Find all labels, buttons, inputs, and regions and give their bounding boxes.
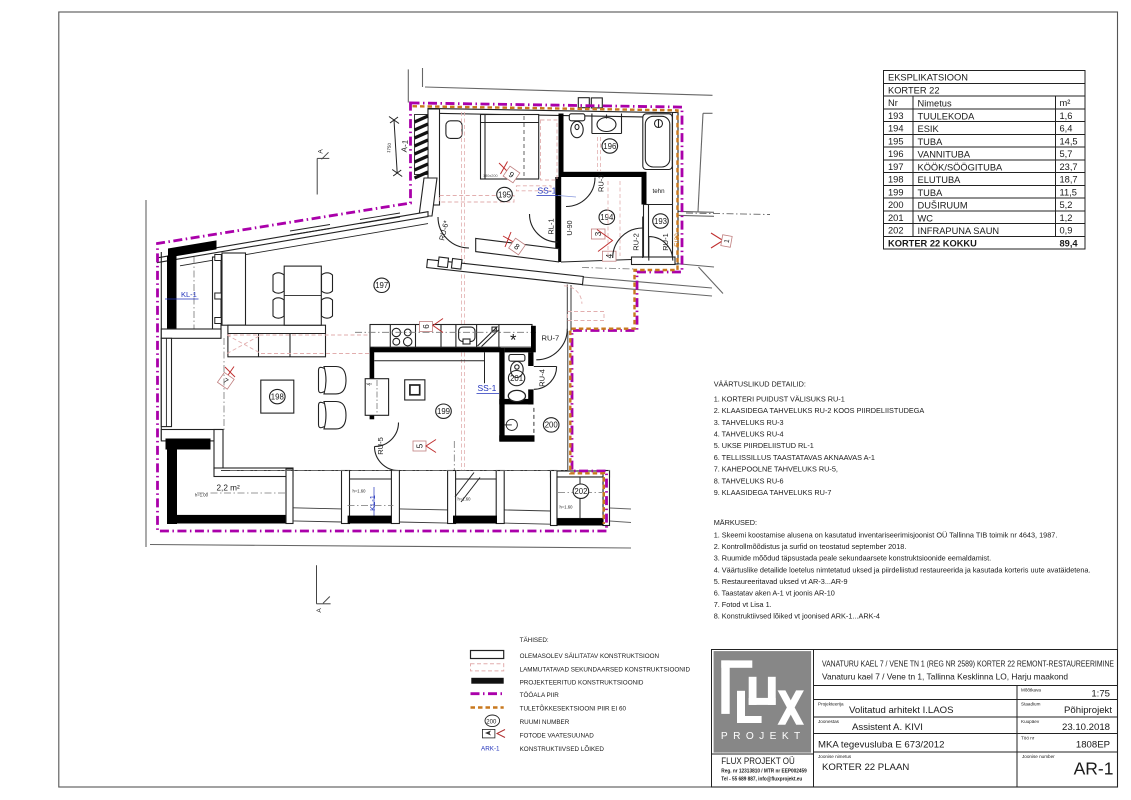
svg-text:Mõõtkava: Mõõtkava — [1021, 687, 1041, 692]
svg-text:Kuupäev: Kuupäev — [1021, 719, 1040, 724]
svg-text:Assistent A. KIVI: Assistent A. KIVI — [852, 722, 923, 733]
svg-text:SS-1: SS-1 — [478, 383, 497, 393]
svg-text:1:75: 1:75 — [1091, 688, 1110, 699]
svg-text:TÄHISED:: TÄHISED: — [520, 636, 549, 644]
svg-text:197: 197 — [888, 162, 904, 172]
svg-text:3. TAHVELUKS RU-3: 3. TAHVELUKS RU-3 — [714, 418, 784, 427]
svg-text:EKSPLIKATSIOON: EKSPLIKATSIOON — [888, 73, 968, 83]
svg-text:INFRAPUNA SAUN: INFRAPUNA SAUN — [918, 226, 1000, 236]
svg-text:3. Ruumide mõõdud täpsustada p: 3. Ruumide mõõdud täpsustada peale sekun… — [714, 554, 991, 563]
svg-text:RU-2: RU-2 — [631, 233, 640, 251]
svg-text:WC: WC — [918, 213, 934, 223]
svg-text:7. KAHEPOOLNE TAHVELUKS RU-5,: 7. KAHEPOOLNE TAHVELUKS RU-5, — [714, 465, 838, 474]
svg-text:RU-5: RU-5 — [376, 437, 385, 455]
svg-text:5,2: 5,2 — [1060, 200, 1073, 210]
svg-text:202: 202 — [574, 487, 587, 496]
svg-text:U-90: U-90 — [567, 220, 574, 235]
svg-text:Töö nr: Töö nr — [1021, 735, 1035, 740]
svg-text:RU-4: RU-4 — [537, 369, 546, 387]
svg-text:ESIK: ESIK — [918, 124, 940, 134]
svg-text:11,5: 11,5 — [1060, 187, 1077, 197]
svg-text:TÖÖALA PIIR: TÖÖALA PIIR — [520, 691, 560, 699]
svg-text:wp: wp — [367, 381, 373, 386]
svg-text:MKA tegevusluba E 673/2012: MKA tegevusluba E 673/2012 — [818, 740, 944, 751]
svg-text:195: 195 — [498, 190, 512, 199]
svg-text:Joonise nimetus: Joonise nimetus — [818, 754, 852, 759]
svg-text:Volitatud arhitekt I.LAOS: Volitatud arhitekt I.LAOS — [849, 705, 954, 716]
svg-text:PROJEKTEERITUD KONSTRUKTSIOONI: PROJEKTEERITUD KONSTRUKTSIOONID — [520, 680, 644, 687]
svg-text:201: 201 — [888, 213, 904, 223]
svg-text:SS-1: SS-1 — [538, 186, 557, 196]
svg-text:A-1: A-1 — [400, 139, 410, 153]
svg-text:tehn: tehn — [653, 188, 666, 195]
svg-text:180x200: 180x200 — [483, 174, 498, 178]
svg-text:Staadium: Staadium — [1021, 702, 1041, 707]
svg-text:KORTER 22 PLAAN: KORTER 22 PLAAN — [822, 762, 909, 773]
svg-text:RL-1: RL-1 — [547, 218, 556, 234]
svg-text:1,6: 1,6 — [1060, 111, 1073, 121]
svg-text:193: 193 — [654, 217, 667, 226]
svg-text:5: 5 — [416, 443, 425, 448]
svg-text:5,7: 5,7 — [1060, 149, 1073, 159]
svg-text:198: 198 — [888, 175, 904, 185]
svg-text:AR-1: AR-1 — [1074, 759, 1114, 779]
svg-text:KL-1: KL-1 — [181, 290, 197, 299]
svg-text:5. Restaureeritavad uksed vt A: 5. Restaureeritavad uksed vt AR-3...AR-9 — [714, 577, 848, 586]
svg-text:2,2 m²: 2,2 m² — [217, 484, 240, 493]
svg-text:3: 3 — [594, 231, 603, 236]
svg-text:195: 195 — [888, 136, 904, 146]
svg-text:Põhiprojekt: Põhiprojekt — [1064, 705, 1112, 716]
svg-text:1808EP: 1808EP — [1076, 740, 1110, 751]
svg-text:Projekteerija: Projekteerija — [818, 702, 844, 707]
svg-text:200: 200 — [888, 200, 904, 210]
svg-text:8. Konstruktiivsed lõiked vt j: 8. Konstruktiivsed lõiked vt joonised AR… — [714, 612, 880, 621]
svg-text:6,4: 6,4 — [1060, 124, 1073, 134]
svg-text:8. TAHVELUKS RU-6: 8. TAHVELUKS RU-6 — [714, 476, 784, 485]
svg-text:196: 196 — [603, 142, 616, 151]
svg-text:194: 194 — [888, 124, 904, 134]
svg-text:18,7: 18,7 — [1060, 175, 1078, 185]
svg-text:Reg. nr 12313810 / MTR nr EEP0: Reg. nr 12313810 / MTR nr EEP002459 — [721, 768, 807, 774]
svg-text:RU-7: RU-7 — [542, 334, 560, 343]
svg-text:89,4: 89,4 — [1060, 238, 1079, 248]
svg-text:7. Fotod vt Lisa 1.: 7. Fotod vt Lisa 1. — [714, 600, 772, 609]
svg-text:PROJEKT: PROJEKT — [721, 731, 806, 742]
svg-text:199: 199 — [437, 407, 450, 416]
svg-text:FOTODE VAATESUUNAD: FOTODE VAATESUUNAD — [520, 733, 595, 740]
svg-text:2. KLAASIDEGA TAHVELUKS RU-2 K: 2. KLAASIDEGA TAHVELUKS RU-2 KOOS PIIRDE… — [714, 406, 925, 415]
svg-text:196: 196 — [888, 149, 904, 159]
svg-text:193: 193 — [888, 111, 904, 121]
svg-text:Joonise number: Joonise number — [1022, 754, 1055, 759]
svg-text:*: * — [510, 332, 517, 350]
svg-text:4. TAHVELUKS RU-4: 4. TAHVELUKS RU-4 — [714, 430, 784, 439]
svg-text:KORTER 22: KORTER 22 — [888, 85, 940, 95]
svg-text:194: 194 — [600, 213, 614, 222]
svg-text:ARK-1: ARK-1 — [481, 746, 500, 753]
svg-text:198: 198 — [271, 392, 284, 401]
svg-text:KÖÖK/SÖÖGITUBA: KÖÖK/SÖÖGITUBA — [918, 162, 1004, 172]
svg-text:h=1.60: h=1.60 — [458, 497, 472, 502]
svg-text:OLEMASOLEV SÄILITATAV KONSTRUK: OLEMASOLEV SÄILITATAV KONSTRUKTSIOON — [520, 652, 660, 660]
svg-text:h=1.60: h=1.60 — [353, 489, 367, 494]
svg-text:DUŠIRUUM: DUŠIRUUM — [918, 201, 968, 211]
svg-text:VANNITUBA: VANNITUBA — [918, 150, 971, 160]
svg-text:1. KORTERI PUIDUST VÄLISUKS RU: 1. KORTERI PUIDUST VÄLISUKS RU-1 — [714, 394, 845, 403]
svg-text:m²: m² — [1060, 98, 1071, 108]
svg-text:KONSTRUKTIIVSED LÕIKED: KONSTRUKTIIVSED LÕIKED — [520, 744, 605, 753]
svg-text:RU-1: RU-1 — [661, 233, 670, 251]
svg-text:202: 202 — [888, 226, 904, 236]
svg-text:MÄRKUSED:: MÄRKUSED: — [714, 518, 757, 527]
svg-text:LAMMUTATAVAD SEKUNDAARSED KONS: LAMMUTATAVAD SEKUNDAARSED KONSTRUKTSIOON… — [520, 666, 691, 673]
svg-text:6. TELLISSILLUS TAASTATAVAS AK: 6. TELLISSILLUS TAASTATAVAS AKNAAVAS A-1 — [714, 453, 875, 462]
svg-text:KORTER 22 KOKKU: KORTER 22 KOKKU — [888, 238, 977, 248]
svg-text:201: 201 — [510, 374, 523, 383]
svg-text:TULETÕKKESEKTSIOONI PIIR EI 60: TULETÕKKESEKTSIOONI PIIR EI 60 — [520, 704, 627, 713]
svg-text:Joonestas: Joonestas — [818, 719, 840, 724]
svg-text:2. Kontrollmõõdistus ja surfid: 2. Kontrollmõõdistus ja surfid on teosta… — [714, 542, 907, 551]
svg-text:Vanaturu kael 7 / Vene tn 1, T: Vanaturu kael 7 / Vene tn 1, Tallinna Ke… — [822, 672, 1068, 682]
svg-text:1,2: 1,2 — [1060, 213, 1073, 223]
svg-text:199: 199 — [888, 187, 904, 197]
svg-text:14,5: 14,5 — [1060, 136, 1078, 146]
svg-text:Nimetus: Nimetus — [918, 99, 952, 109]
svg-text:6: 6 — [422, 324, 431, 329]
svg-text:RUUMI NUMBER: RUUMI NUMBER — [520, 719, 570, 726]
svg-text:KL-1: KL-1 — [368, 495, 377, 511]
svg-text:RU-3: RU-3 — [596, 175, 605, 193]
svg-text:h=1.60: h=1.60 — [560, 505, 574, 510]
svg-text:197: 197 — [375, 281, 388, 290]
svg-text:5. UKSE PIIRDELIISTUD RL-1: 5. UKSE PIIRDELIISTUD RL-1 — [714, 441, 814, 450]
svg-text:A: A — [316, 608, 323, 613]
svg-text:VANATURU KAEL 7 / VENE TN 1 (R: VANATURU KAEL 7 / VENE TN 1 (REG NR 2589… — [822, 659, 1114, 669]
svg-text:23.10.2018: 23.10.2018 — [1062, 722, 1110, 733]
svg-text:ELUTUBA: ELUTUBA — [918, 175, 962, 185]
svg-text:TUULEKODA: TUULEKODA — [918, 111, 976, 121]
svg-text:FLUX PROJEKT OÜ: FLUX PROJEKT OÜ — [721, 756, 795, 767]
svg-text:200: 200 — [545, 421, 559, 430]
svg-text:Nr: Nr — [888, 98, 898, 108]
svg-text:200: 200 — [486, 720, 497, 726]
svg-text:6. Taastatav aken A-1 vt jooni: 6. Taastatav aken A-1 vt joonis AR-10 — [714, 589, 835, 598]
svg-text:A: A — [317, 149, 324, 154]
svg-text:0,9: 0,9 — [1060, 226, 1073, 236]
svg-text:Tel - 55 689 887, info@fluxpro: Tel - 55 689 887, info@fluxprojekt.eu — [721, 776, 802, 782]
svg-text:9. KLAASIDEGA TAHVELUKS RU-7: 9. KLAASIDEGA TAHVELUKS RU-7 — [714, 488, 832, 497]
svg-text:1. Skeemi koostamise alusena o: 1. Skeemi koostamise alusena on kasutatu… — [714, 531, 1058, 540]
svg-text:TUBA: TUBA — [918, 137, 944, 147]
svg-text:VÄÄRTUSLIKUD DETAILID:: VÄÄRTUSLIKUD DETAILID: — [714, 380, 806, 389]
svg-text:TUBA: TUBA — [918, 188, 944, 198]
svg-text:23,7: 23,7 — [1060, 162, 1078, 172]
svg-text:4. Väärtuslike detailide loete: 4. Väärtuslike detailide loetelus nimtet… — [714, 565, 1091, 574]
